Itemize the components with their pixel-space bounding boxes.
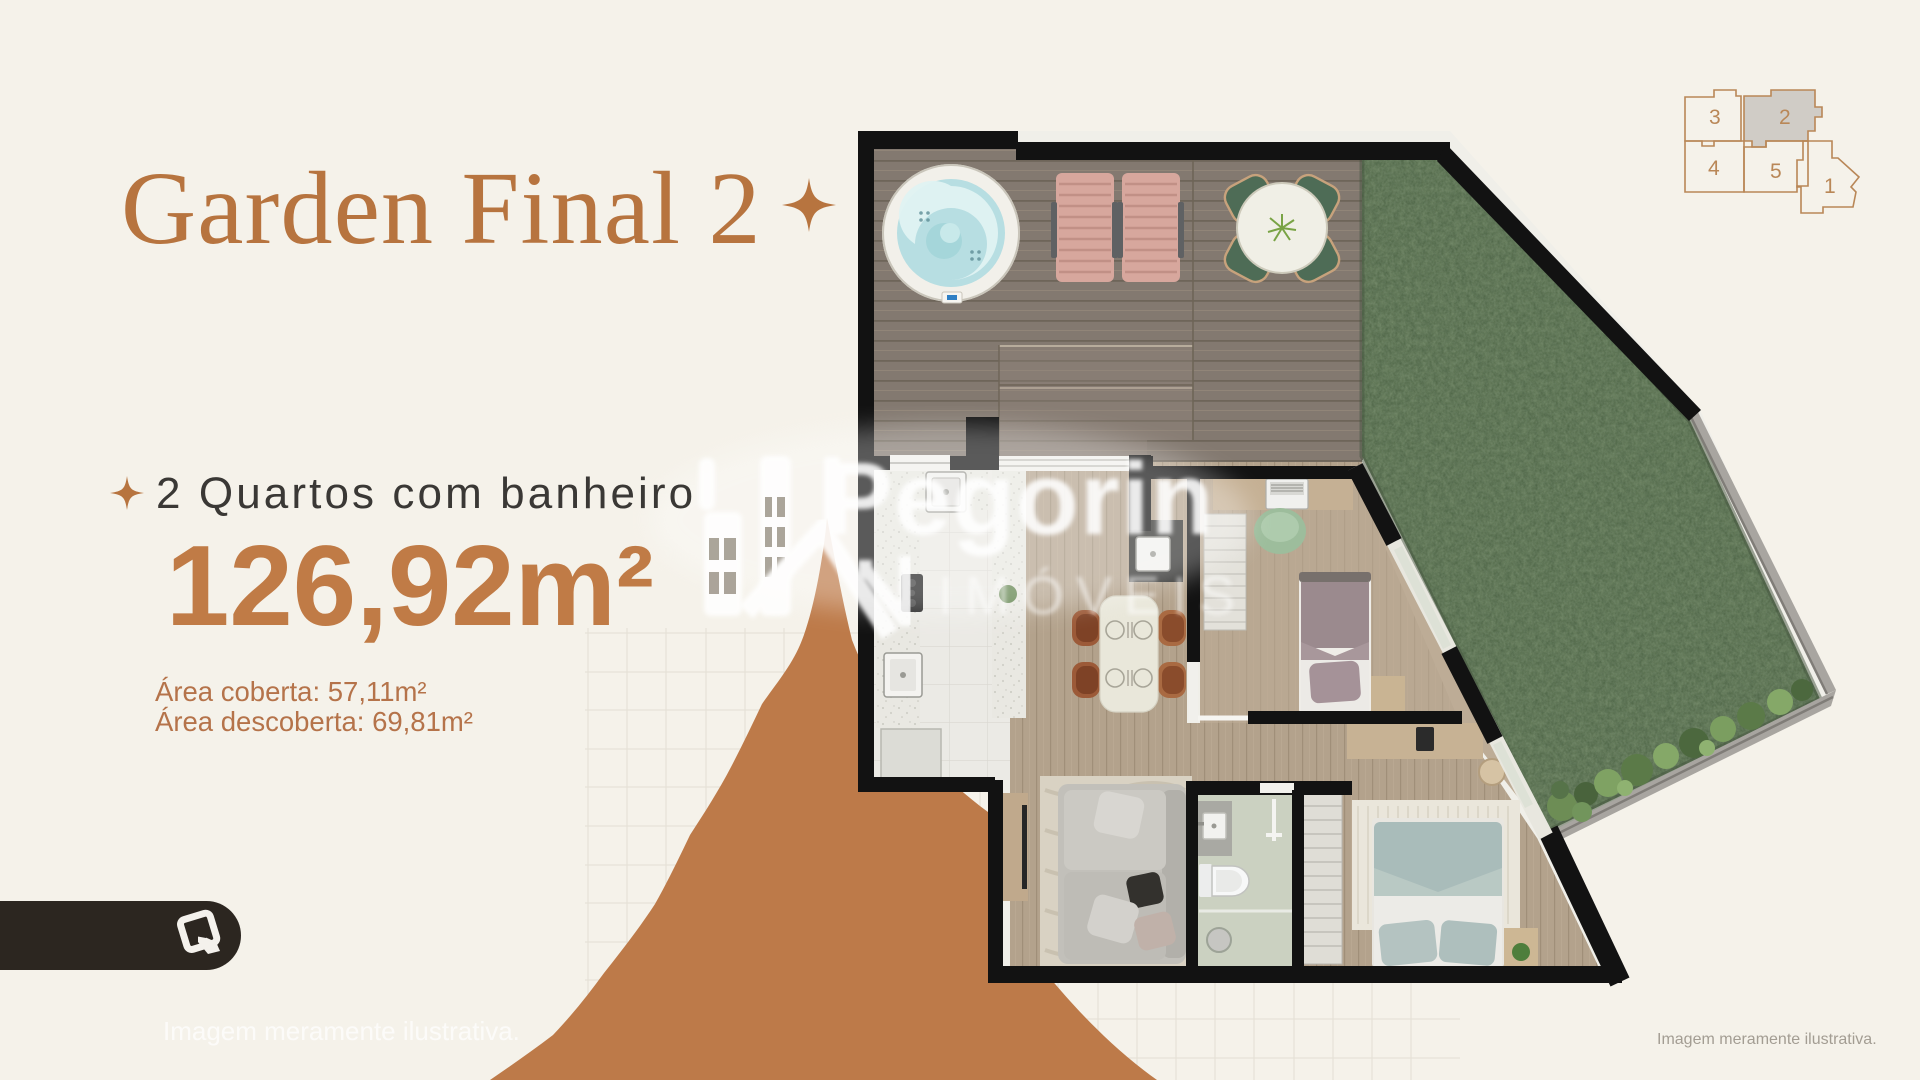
svg-text:1: 1 — [1824, 175, 1836, 198]
svg-text:Pegorin: Pegorin — [824, 441, 1214, 556]
svg-text:Imagem meramente ilustrativa.: Imagem meramente ilustrativa. — [1657, 1031, 1877, 1048]
svg-text:5: 5 — [1770, 160, 1782, 183]
svg-text:4: 4 — [1708, 157, 1720, 180]
svg-text:Imagem meramente ilustrativa.: Imagem meramente ilustrativa. — [163, 1016, 520, 1046]
svg-text:126,92m²: 126,92m² — [166, 523, 654, 650]
svg-text:2: 2 — [1779, 106, 1791, 129]
svg-text:Garden Final 2: Garden Final 2 — [121, 151, 762, 266]
svg-text:Área descoberta: 69,81m²: Área descoberta: 69,81m² — [155, 706, 473, 737]
svg-text:3: 3 — [1709, 106, 1721, 129]
svg-text:2 Quartos com banheiro: 2 Quartos com banheiro — [156, 469, 696, 518]
svg-text:Área coberta: 57,11m²: Área coberta: 57,11m² — [155, 676, 427, 707]
svg-text:IMÓVEIS: IMÓVEIS — [938, 566, 1247, 626]
